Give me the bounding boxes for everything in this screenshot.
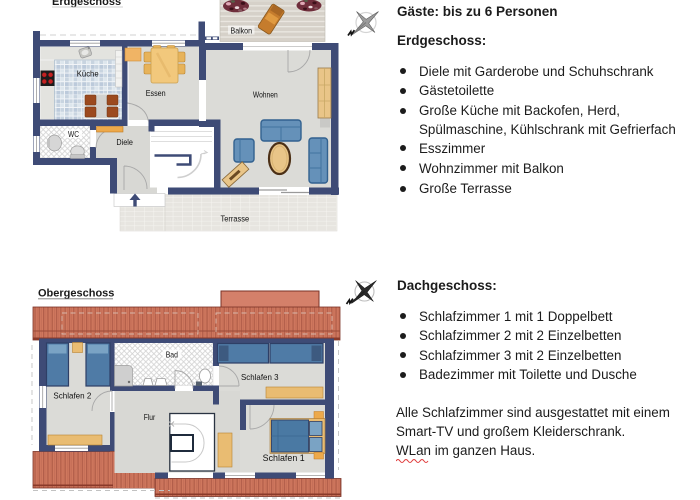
svg-text:WC: WC [68, 129, 79, 139]
svg-text:Bad: Bad [166, 350, 178, 360]
svg-text:Schlafen 2: Schlafen 2 [53, 391, 91, 401]
svg-text:Küche: Küche [77, 68, 99, 78]
svg-text:Diele: Diele [116, 137, 133, 147]
svg-text:Wohnen: Wohnen [253, 89, 278, 99]
svg-text:Flur: Flur [144, 412, 156, 422]
svg-text:Schlafen 1: Schlafen 1 [263, 453, 305, 463]
svg-text:Essen: Essen [146, 88, 166, 98]
svg-text:Terrasse: Terrasse [221, 213, 250, 223]
svg-text:Obergeschoss: Obergeschoss [38, 288, 114, 300]
svg-text:Balkon: Balkon [231, 27, 253, 36]
svg-text:Schlafen 3: Schlafen 3 [241, 372, 279, 382]
